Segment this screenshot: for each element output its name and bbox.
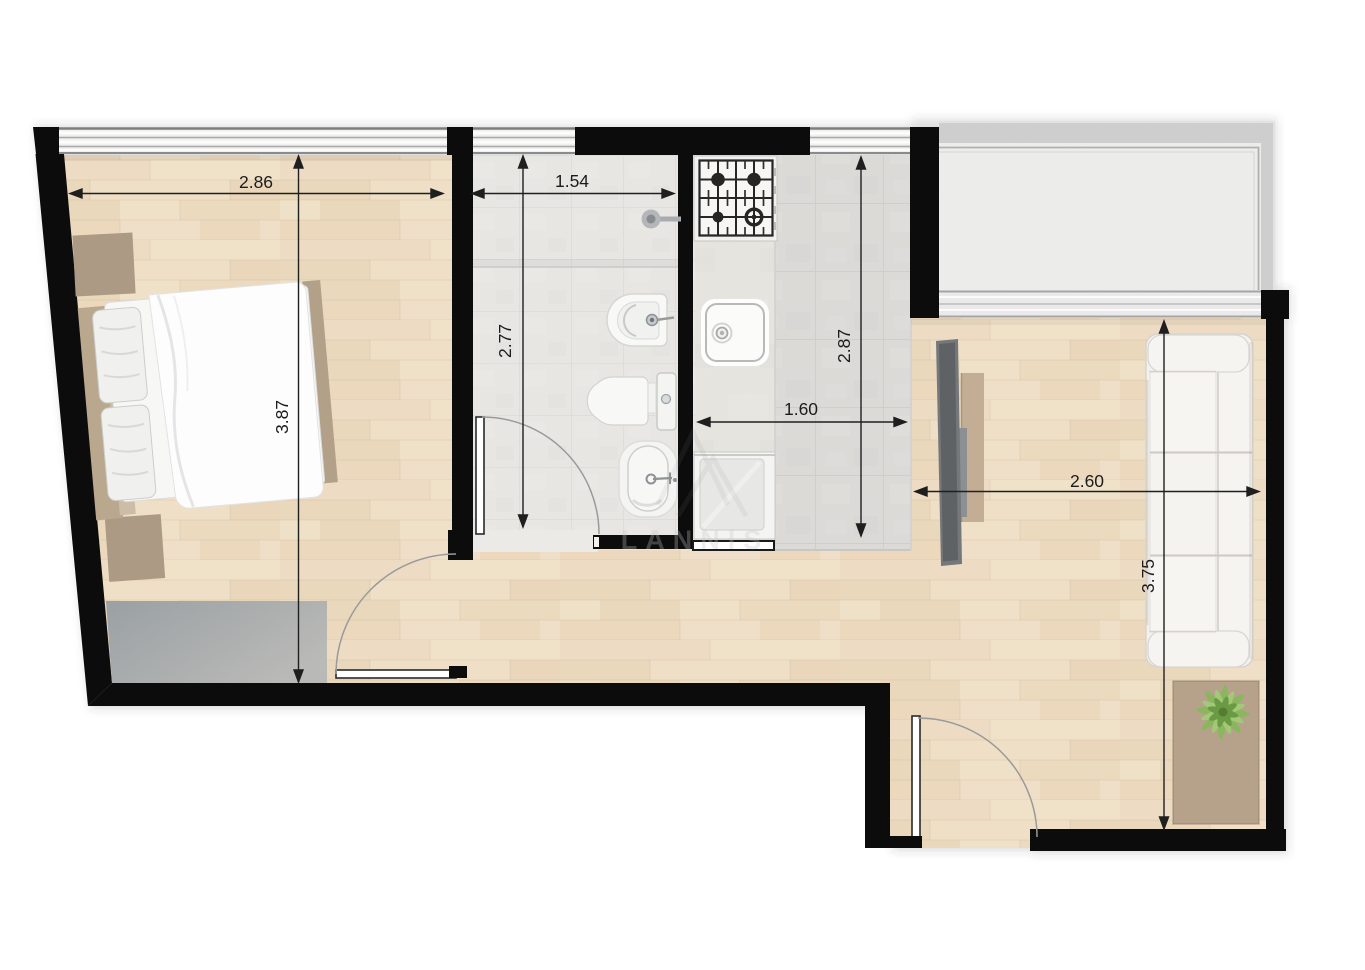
svg-text:2.60: 2.60: [1070, 471, 1104, 491]
svg-text:2.87: 2.87: [834, 329, 854, 363]
svg-text:2.77: 2.77: [495, 324, 515, 358]
svg-text:3.87: 3.87: [272, 400, 292, 434]
svg-text:2.86: 2.86: [239, 172, 273, 192]
svg-text:1.60: 1.60: [784, 399, 818, 419]
svg-text:1.54: 1.54: [555, 171, 589, 191]
svg-text:LANNIS: LANNIS: [621, 525, 770, 555]
svg-text:3.75: 3.75: [1138, 559, 1158, 593]
